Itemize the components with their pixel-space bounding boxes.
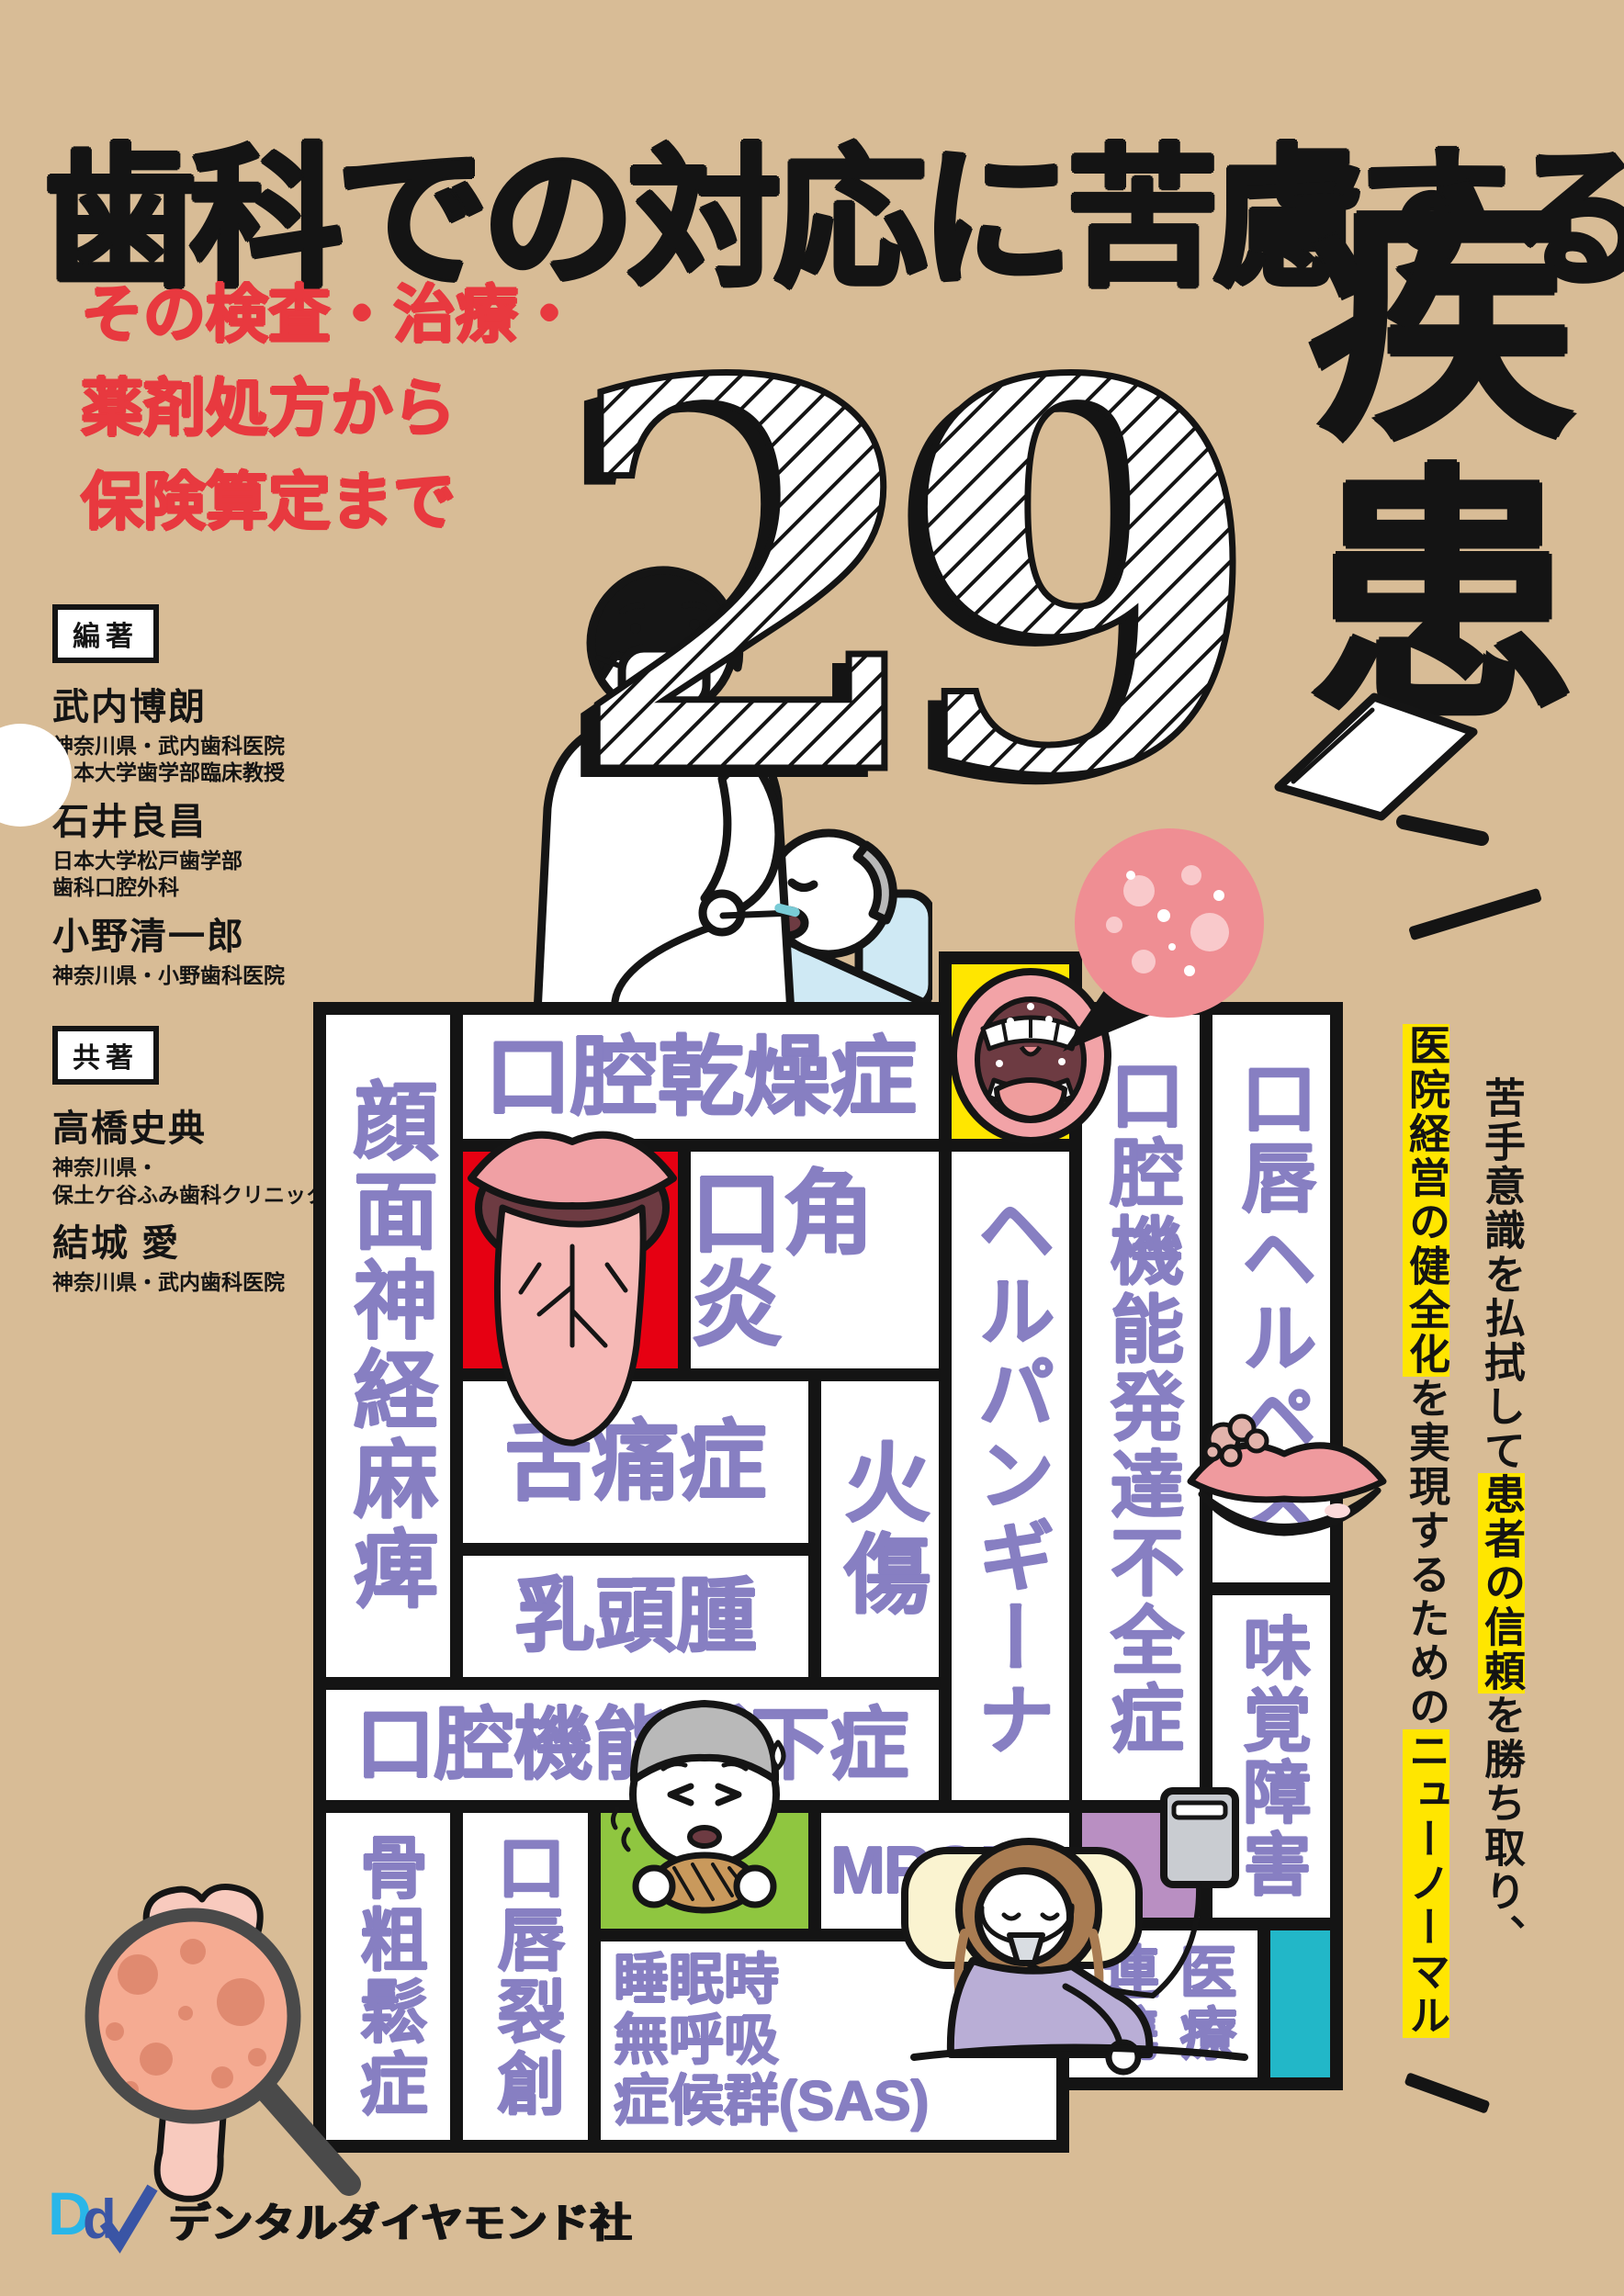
book-cover: 歯科での対応に苦慮する その検査・治療・ 薬剤処方から 保険算定まで 29 29… (0, 0, 1624, 2296)
disease-label: 火傷 (837, 1437, 923, 1620)
disease-label: 口腔機能発達不全症 (1104, 1057, 1178, 1758)
coauthor-affiliation: 神奈川県・武内歯科医院 (52, 1269, 346, 1296)
disease-label: 乳頭腫 (514, 1576, 757, 1657)
editor-name: 武内博朗 (52, 685, 346, 729)
coauthor-affiliation: 神奈川県・保土ケ谷ふみ歯科クリニック (52, 1154, 346, 1209)
editor-affiliation: 神奈川県・小野歯科医院 (52, 962, 346, 989)
disease-label: 口角炎 (691, 1168, 939, 1352)
coauthor-name: 結城 愛 (52, 1221, 346, 1266)
coauthors-badge: 共著 (52, 1026, 159, 1085)
tongue-illustration (445, 1070, 703, 1465)
sleep-apnea-cpap-illustration (877, 1777, 1263, 2112)
big-number-29: 29 29 (537, 292, 1254, 806)
grid-cell-teal-blank (1257, 1918, 1343, 2090)
coauthor-name: 高橋史典 (52, 1107, 346, 1151)
old-man-eating-illustration (590, 1692, 819, 1941)
grid-cell-papilloma: 乳頭腫 (450, 1543, 821, 1690)
editor-name: 石井良昌 (52, 800, 346, 844)
editor-affiliation: 日本大学松戸歯学部歯科口腔外科 (52, 848, 346, 902)
grid-cell-lip-laceration: 口唇裂創 (450, 1800, 601, 2153)
lips-herpes-illustration (1174, 1391, 1399, 1580)
tagline-column-right: 苦手意識を払拭して患者の信頼を勝ち取り、 (1481, 1076, 1522, 1958)
big-number: 29 (561, 292, 1236, 806)
editor-affiliation: 神奈川県・武内歯科医院日本大学歯学部臨床教授 (52, 733, 346, 787)
author-block: 編著 武内博朗 神奈川県・武内歯科医院日本大学歯学部臨床教授 石井良昌 日本大学… (52, 604, 346, 1310)
editor-name: 小野清一郎 (52, 915, 346, 959)
grid-cell-burn: 火傷 (808, 1368, 952, 1690)
tagline-column-left: 医院経営の健全化を実現するためのニューノーマル (1405, 1024, 1447, 2038)
decorative-diagonal-bottom (1404, 2072, 1490, 2114)
disease-label: ヘルパンギーナ (972, 1189, 1049, 1761)
grid-cell-angular-cheilitis: 口角炎 (678, 1139, 952, 1381)
grid-cell-facial-nerve-paralysis: 顔面神経麻痺 (313, 1002, 463, 1690)
big-number-unit: 疾患 (1284, 176, 1552, 735)
dental-lamp-illustration (1266, 675, 1495, 850)
disease-label: 口唇裂創 (491, 1832, 559, 2121)
magnified-spots-callout (1052, 822, 1277, 1056)
subtitle-line: 薬剤処方から (81, 362, 595, 456)
grid-cell-herpangina: ヘルパンギーナ (939, 1139, 1082, 1813)
decorative-diagonal-top (1408, 888, 1542, 941)
osteoporosis-bone-magnifier-illustration (46, 1864, 386, 2241)
subtitle-line: その検査・治療・ (81, 268, 595, 362)
disease-label: 顔面神経麻痺 (346, 1077, 431, 1615)
editors-badge: 編著 (52, 604, 159, 663)
